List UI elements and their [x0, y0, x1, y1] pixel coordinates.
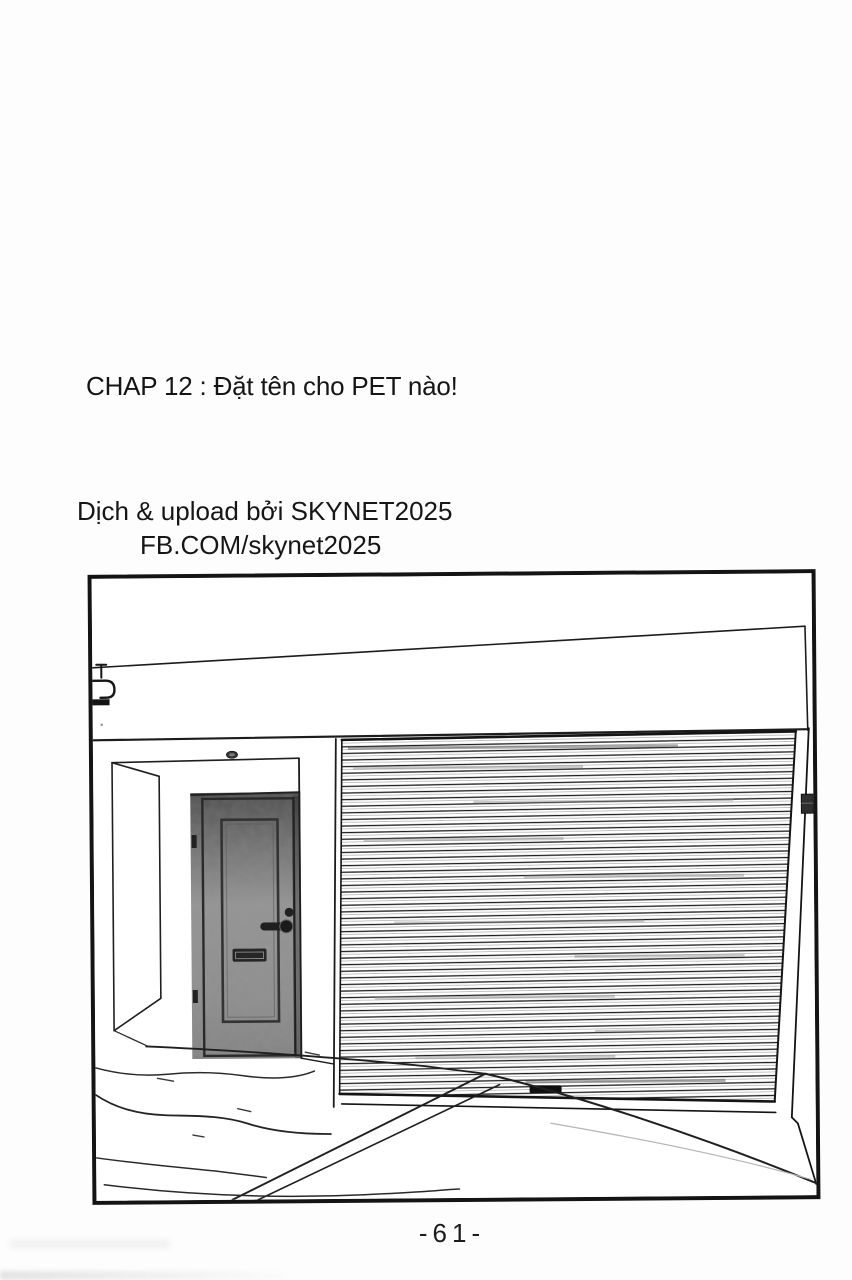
entry-door: [190, 792, 302, 1059]
credit-line-1: Dịch & upload bởi SKYNET2025: [77, 494, 452, 528]
page-number: -61-: [419, 1218, 485, 1249]
door-hinge: [192, 835, 197, 848]
wall-latch-bracket: [801, 794, 813, 813]
panel-artwork: [92, 573, 817, 1201]
manga-page: CHAP 12 : Đặt tên cho PET nào! Dịch & up…: [0, 0, 852, 1280]
manga-panel: [88, 569, 821, 1205]
door-mail-slot: [232, 948, 266, 961]
scan-artifact: [10, 1240, 170, 1248]
door-hinge: [193, 990, 198, 1003]
scan-artifact: [0, 1271, 300, 1280]
door-lock-bolt: [285, 908, 294, 917]
credit-line-2: FB.COM/skynet2025: [140, 528, 452, 562]
translator-credits: Dịch & upload bởi SKYNET2025 FB.COM/skyn…: [77, 494, 452, 562]
chapter-title: CHAP 12 : Đặt tên cho PET nào!: [86, 371, 458, 402]
